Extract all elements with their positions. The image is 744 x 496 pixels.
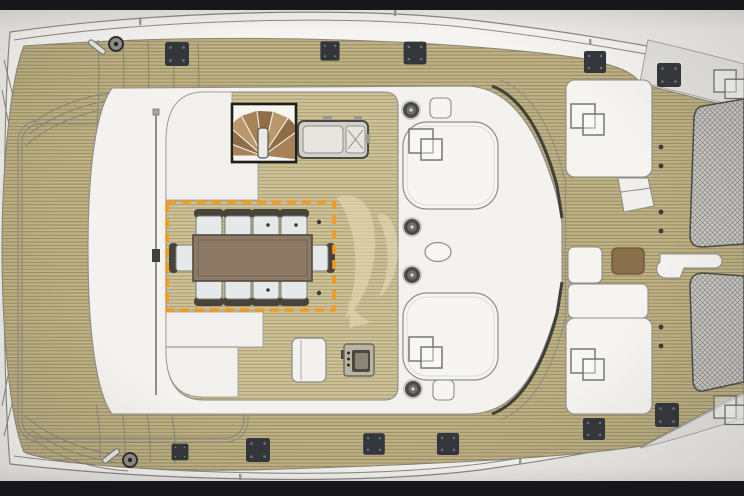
deck-cleat [363,433,385,455]
stanchion-dot [659,210,664,215]
deck-cleat [655,403,679,427]
stanchion-tick [519,458,521,464]
lounge-bench[interactable] [568,284,648,318]
screen-bezel-top [0,0,744,10]
module-tab [366,134,370,143]
cocktail-table[interactable] [612,248,644,274]
grill-door-panel [355,353,368,369]
trampoline-net-top [690,99,744,247]
deck-dot [317,220,321,224]
winch [402,217,422,237]
mooring-ring [123,453,137,467]
deck-plan-canvas [0,0,744,496]
deck-cleat [584,51,606,73]
staircase-center-column [258,128,268,158]
small-roof-hatch [430,98,451,118]
aft-bench-seat[interactable] [292,338,326,382]
helm-seat[interactable] [568,247,602,283]
roof-oval-fitting [425,243,451,262]
dining-table[interactable] [193,235,312,281]
deck-cleat [246,438,270,462]
stanchion-tick [239,474,241,480]
grill-console[interactable] [341,344,374,376]
stanchion-tick [394,10,396,16]
winch [401,100,421,120]
stanchion-tick [589,39,591,45]
deck-cleat [404,42,427,65]
stanchion-dot [659,229,664,234]
stanchion-dot [659,325,664,330]
stanchion-dot [659,145,664,150]
dining-chair[interactable] [223,209,253,238]
deck-cleat [437,433,459,455]
winch [402,265,422,285]
trampoline-net-bottom [690,273,744,391]
winch [403,379,423,399]
dining-chair[interactable] [194,209,224,238]
module-counter [303,126,343,153]
deck-cleat [657,63,681,87]
deck-cleat [583,418,605,440]
stanchion-dot [659,344,664,349]
dining-chair[interactable] [279,209,309,238]
small-roof-hatch [433,380,454,400]
deck-dot [317,291,321,295]
screen-bezel-bottom [0,481,744,496]
stanchion-dot [659,164,664,169]
wet-bar-module[interactable] [298,116,370,158]
screen-photo-of-deck-plan [0,0,744,496]
dining-chair[interactable] [251,209,281,238]
deck-cleat [172,444,189,461]
mooring-ring [109,37,123,51]
deck-cleat [320,41,339,60]
deck-step [618,178,654,212]
stanchion-tick [139,19,141,25]
deck-cleat [165,42,189,66]
